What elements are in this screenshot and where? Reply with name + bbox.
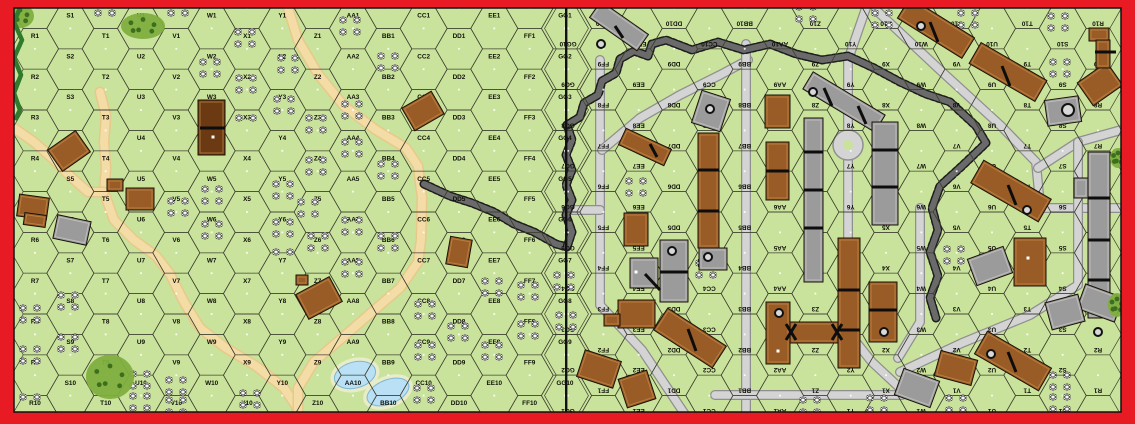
hex-label-left-CC5: CC5 bbox=[417, 176, 430, 183]
hex-label-right-T7: T7 bbox=[1023, 142, 1031, 149]
hex-label-left-U2: U2 bbox=[137, 53, 146, 60]
hex-label-left-DD9: DD9 bbox=[453, 359, 466, 366]
hex-label-left-T2: T2 bbox=[102, 74, 110, 81]
hex-label-left-X7: X7 bbox=[243, 278, 251, 285]
hex-label-right-CC10: CC10 bbox=[701, 40, 718, 47]
hex-label-left-U8: U8 bbox=[137, 298, 146, 305]
hex-label-left-FF1: FF1 bbox=[524, 33, 536, 40]
hex-label-left-Y1: Y1 bbox=[278, 13, 286, 20]
hex-label-right-BB3: BB3 bbox=[738, 305, 751, 312]
hex-label-right-R2: R2 bbox=[1093, 346, 1102, 353]
hex-label-left-S9: S9 bbox=[66, 339, 74, 346]
hex-label-left-CC6: CC6 bbox=[417, 217, 430, 224]
hex-label-right-AA5: AA5 bbox=[773, 244, 786, 251]
hex-label-left-DD1: DD1 bbox=[453, 33, 466, 40]
hex-label-right-R7: R7 bbox=[1093, 142, 1102, 149]
wooden-building-4 bbox=[107, 179, 123, 191]
hex-label-right-R1: R1 bbox=[1093, 387, 1102, 394]
hex-label-left-R7: R7 bbox=[31, 278, 40, 285]
hex-label-right-X9: X9 bbox=[882, 60, 890, 67]
hex-label-right-Z2: Z2 bbox=[811, 346, 819, 353]
hex-label-left-FF10: FF10 bbox=[522, 400, 537, 407]
hex-label-right-S9: S9 bbox=[1058, 81, 1066, 88]
wooden-building-20 bbox=[698, 133, 719, 248]
hex-label-right-DD8: DD8 bbox=[667, 101, 680, 108]
hex-label-right-BB1: BB1 bbox=[738, 387, 751, 394]
hex-label-left-EE2: EE2 bbox=[488, 53, 501, 60]
hex-label-left-BB8: BB8 bbox=[382, 319, 395, 326]
hex-label-right-S6: S6 bbox=[1058, 203, 1066, 210]
hex-label-right-EE8: EE8 bbox=[632, 121, 645, 128]
hex-label-right-U2: U2 bbox=[987, 366, 996, 373]
hex-label-right-Y7: Y7 bbox=[846, 162, 854, 169]
hex-label-right-Z1: Z1 bbox=[811, 387, 819, 394]
hex-label-right-EE7: EE7 bbox=[632, 162, 645, 169]
hex-label-left-FF5: FF5 bbox=[524, 196, 536, 203]
hex-label-left-CC1: CC1 bbox=[417, 13, 430, 20]
hex-label-right-W4: W4 bbox=[916, 285, 926, 292]
hex-label-right-BB5: BB5 bbox=[738, 223, 751, 230]
door-marker bbox=[1027, 257, 1030, 260]
hex-label-left-DD4: DD4 bbox=[453, 155, 466, 162]
hex-label-right-DD5: DD5 bbox=[667, 223, 680, 230]
wooden-building-5 bbox=[126, 188, 154, 210]
hex-label-left-R1: R1 bbox=[31, 33, 40, 40]
door-marker bbox=[777, 350, 780, 353]
hex-label-left-R4: R4 bbox=[31, 155, 40, 162]
hex-label-left-T4: T4 bbox=[102, 155, 110, 162]
hex-label-left-Y5: Y5 bbox=[278, 176, 286, 183]
hex-label-left-EE4: EE4 bbox=[488, 135, 501, 142]
hex-label-left-S1: S1 bbox=[66, 13, 74, 20]
hex-label-left-T6: T6 bbox=[102, 237, 110, 244]
hex-label-left-V4: V4 bbox=[172, 155, 180, 162]
hex-label-right-V5: V5 bbox=[952, 223, 960, 230]
hex-label-left-X6: X6 bbox=[243, 237, 251, 244]
hex-label-right-EE9: EE9 bbox=[632, 81, 645, 88]
hex-label-left-R10: R10 bbox=[29, 400, 41, 407]
hex-label-left-BB7: BB7 bbox=[382, 278, 395, 285]
hex-label-left-AA10: AA10 bbox=[345, 380, 362, 387]
hex-label-right-FF4: FF4 bbox=[597, 264, 609, 271]
hex-label-left-W2: W2 bbox=[207, 53, 217, 60]
hex-label-right-Y9: Y9 bbox=[846, 81, 854, 88]
hex-label-right-FF7: FF7 bbox=[597, 142, 609, 149]
hex-label-right-W5: W5 bbox=[916, 244, 926, 251]
hex-label-right-BB4: BB4 bbox=[738, 264, 751, 271]
hex-label-left-Y4: Y4 bbox=[278, 135, 286, 142]
hex-label-right-T9: T9 bbox=[1023, 60, 1031, 67]
tree-clump bbox=[86, 355, 134, 399]
hex-label-right-BB9: BB9 bbox=[738, 60, 751, 67]
hex-label-left-Z1: Z1 bbox=[314, 33, 322, 40]
hex-label-left-FF3: FF3 bbox=[524, 115, 536, 122]
hex-label-left-V8: V8 bbox=[172, 319, 180, 326]
hex-label-right-Z3: Z3 bbox=[811, 305, 819, 312]
hex-label-left-S8: S8 bbox=[66, 298, 74, 305]
hex-label-left-BB2: BB2 bbox=[382, 74, 395, 81]
hex-label-right-DD1: DD1 bbox=[667, 387, 680, 394]
door-marker bbox=[635, 271, 638, 274]
hex-label-left-W7: W7 bbox=[207, 257, 217, 264]
hex-label-right-GG6: GG6 bbox=[561, 203, 575, 210]
hex-label-right-BB10: BB10 bbox=[736, 19, 753, 26]
hex-label-left-R6: R6 bbox=[31, 237, 40, 244]
hex-label-right-GG9: GG9 bbox=[561, 81, 575, 88]
hex-label-right-V1: V1 bbox=[952, 387, 960, 394]
well-icon bbox=[597, 40, 605, 48]
hex-label-left-EE7: EE7 bbox=[488, 257, 501, 264]
hex-label-left-Y8: Y8 bbox=[278, 298, 286, 305]
hex-label-right-X2: X2 bbox=[882, 346, 890, 353]
hex-label-right-W3: W3 bbox=[916, 325, 926, 332]
hex-label-right-T2: T2 bbox=[1023, 346, 1031, 353]
hex-label-left-T1: T1 bbox=[102, 33, 110, 40]
hex-label-left-BB5: BB5 bbox=[382, 196, 395, 203]
hex-label-right-X1: X1 bbox=[882, 387, 890, 394]
hex-label-left-V1: V1 bbox=[172, 33, 180, 40]
hex-label-left-X9: X9 bbox=[243, 359, 251, 366]
hex-label-left-BB10: BB10 bbox=[380, 400, 397, 407]
hex-label-right-FF9: FF9 bbox=[597, 60, 609, 67]
hex-label-right-Y6: Y6 bbox=[846, 203, 854, 210]
hex-label-right-X4: X4 bbox=[882, 264, 890, 271]
hex-label-left-CC2: CC2 bbox=[417, 53, 430, 60]
hex-label-right-Z9: Z9 bbox=[811, 60, 819, 67]
hex-label-left-W1: W1 bbox=[207, 13, 217, 20]
hex-label-left-BB3: BB3 bbox=[382, 115, 395, 122]
hex-label-left-T8: T8 bbox=[102, 319, 110, 326]
hex-label-left-AA3: AA3 bbox=[347, 94, 360, 101]
hex-label-right-GG7: GG7 bbox=[561, 162, 575, 169]
hex-label-right-W2: W2 bbox=[916, 366, 926, 373]
hex-label-right-FF2: FF2 bbox=[597, 346, 609, 353]
hex-label-left-W9: W9 bbox=[207, 339, 217, 346]
hex-label-left-S2: S2 bbox=[66, 53, 74, 60]
well-icon bbox=[809, 88, 817, 96]
hex-label-left-DD10: DD10 bbox=[451, 400, 468, 407]
hex-label-right-DD6: DD6 bbox=[667, 183, 680, 190]
tree-clump bbox=[121, 13, 165, 39]
wooden-building-23 bbox=[624, 213, 648, 246]
hex-label-left-T3: T3 bbox=[102, 115, 110, 122]
hex-label-left-R3: R3 bbox=[31, 115, 40, 122]
hex-label-right-CC4: CC4 bbox=[703, 285, 716, 292]
hex-label-left-Z10: Z10 bbox=[312, 400, 323, 407]
hex-label-left-CC7: CC7 bbox=[417, 257, 430, 264]
hex-label-left-Z6: Z6 bbox=[314, 237, 322, 244]
hex-label-right-DD9: DD9 bbox=[667, 60, 680, 67]
hex-label-right-R10: R10 bbox=[1092, 19, 1104, 26]
stone-building-11 bbox=[804, 118, 823, 282]
wooden-building-21 bbox=[765, 95, 790, 128]
hex-label-right-T1: T1 bbox=[1023, 387, 1031, 394]
hex-label-right-DD10: DD10 bbox=[665, 19, 682, 26]
hex-label-right-W6: W6 bbox=[916, 203, 926, 210]
well-icon bbox=[775, 309, 783, 317]
hex-label-right-AA4: AA4 bbox=[773, 285, 786, 292]
hex-label-left-Z2: Z2 bbox=[314, 74, 322, 81]
well-icon bbox=[1094, 328, 1102, 336]
hex-label-right-V3: V3 bbox=[952, 305, 960, 312]
hex-label-left-S5: S5 bbox=[66, 176, 74, 183]
hex-label-right-V2: V2 bbox=[952, 346, 960, 353]
hex-label-right-AA9: AA9 bbox=[773, 81, 786, 88]
hex-label-right-Y10: Y10 bbox=[845, 40, 857, 47]
hex-label-right-AA10: AA10 bbox=[771, 40, 788, 47]
hex-label-left-X4: X4 bbox=[243, 155, 251, 162]
hex-label-right-V6: V6 bbox=[952, 183, 960, 190]
hex-label-right-V8: V8 bbox=[952, 101, 960, 108]
hex-label-left-EE3: EE3 bbox=[488, 94, 501, 101]
hex-label-right-DD2: DD2 bbox=[667, 346, 680, 353]
hex-label-right-U8: U8 bbox=[987, 121, 996, 128]
hex-label-left-Y6: Y6 bbox=[278, 217, 286, 224]
hex-label-right-DD7: DD7 bbox=[667, 142, 680, 149]
hex-label-right-BB7: BB7 bbox=[738, 142, 751, 149]
hex-label-left-U5: U5 bbox=[137, 176, 146, 183]
hex-label-left-DD7: DD7 bbox=[453, 278, 466, 285]
hex-label-right-S10: S10 bbox=[1057, 40, 1069, 47]
hex-label-right-W8: W8 bbox=[916, 121, 926, 128]
hex-label-left-Z9: Z9 bbox=[314, 359, 322, 366]
hex-label-right-FF3: FF3 bbox=[597, 305, 609, 312]
stone-building-18 bbox=[699, 248, 727, 270]
hex-label-left-Y9: Y9 bbox=[278, 339, 286, 346]
hex-label-left-FF4: FF4 bbox=[524, 155, 536, 162]
hex-label-left-U9: U9 bbox=[137, 339, 146, 346]
hex-label-left-V9: V9 bbox=[172, 359, 180, 366]
hex-label-left-DD5: DD5 bbox=[453, 196, 466, 203]
hex-label-left-U7: U7 bbox=[137, 257, 146, 264]
hex-label-right-GG2: GG2 bbox=[561, 366, 575, 373]
wargame-hex-map[interactable]: R1R2R3R4R5R6R7R8R9R10S1S2S3S4S5S6S7S8S9S… bbox=[0, 0, 1135, 424]
hex-label-right-GG8: GG8 bbox=[561, 121, 575, 128]
hex-label-left-BB1: BB1 bbox=[382, 33, 395, 40]
hex-label-right-AA2: AA2 bbox=[773, 366, 786, 373]
hex-label-right-V9: V9 bbox=[952, 60, 960, 67]
hex-label-right-S4: S4 bbox=[1058, 285, 1066, 292]
well-icon bbox=[668, 247, 676, 255]
hex-label-right-T10: T10 bbox=[1021, 19, 1032, 26]
hex-label-left-X8: X8 bbox=[243, 319, 251, 326]
hex-label-right-CC2: CC2 bbox=[703, 366, 716, 373]
hex-label-right-BB6: BB6 bbox=[738, 183, 751, 190]
hex-label-right-EE6: EE6 bbox=[632, 203, 645, 210]
hex-label-right-W10: W10 bbox=[914, 40, 928, 47]
map-window: R1R2R3R4R5R6R7R8R9R10S1S2S3S4S5S6S7S8S9S… bbox=[0, 0, 1135, 424]
hex-label-right-U9: U9 bbox=[987, 81, 996, 88]
well-icon bbox=[987, 350, 995, 358]
hex-label-left-FF9: FF9 bbox=[524, 359, 536, 366]
hex-label-left-FF6: FF6 bbox=[524, 237, 536, 244]
hex-label-right-BB8: BB8 bbox=[738, 101, 751, 108]
hex-label-left-CC4: CC4 bbox=[417, 135, 430, 142]
hex-label-left-R2: R2 bbox=[31, 74, 40, 81]
door-marker bbox=[212, 136, 215, 139]
hex-label-right-T3: T3 bbox=[1023, 305, 1031, 312]
wooden-building-34 bbox=[1014, 238, 1046, 286]
well-icon bbox=[704, 253, 712, 261]
hex-label-right-W7: W7 bbox=[916, 162, 926, 169]
well-icon bbox=[880, 328, 888, 336]
hex-label-right-Y8: Y8 bbox=[846, 121, 854, 128]
well-icon bbox=[706, 105, 714, 113]
hex-label-left-DD3: DD3 bbox=[453, 115, 466, 122]
hex-label-left-U4: U4 bbox=[137, 135, 146, 142]
hex-label-left-U6: U6 bbox=[137, 217, 146, 224]
hex-label-right-FF5: FF5 bbox=[597, 223, 609, 230]
hex-label-left-BB9: BB9 bbox=[382, 359, 395, 366]
hex-label-right-FF6: FF6 bbox=[597, 183, 609, 190]
hex-label-left-V6: V6 bbox=[172, 237, 180, 244]
hex-label-right-V4: V4 bbox=[952, 264, 960, 271]
hex-label-right-FF1: FF1 bbox=[597, 387, 609, 394]
hex-label-left-T7: T7 bbox=[102, 278, 110, 285]
hex-label-left-T5: T5 bbox=[102, 196, 110, 203]
hex-label-left-EE6: EE6 bbox=[488, 217, 501, 224]
hex-label-left-S10: S10 bbox=[65, 380, 77, 387]
wooden-building-8 bbox=[446, 236, 473, 267]
hex-label-left-W5: W5 bbox=[207, 176, 217, 183]
hex-label-left-Y7: Y7 bbox=[278, 257, 286, 264]
well-icon bbox=[917, 22, 925, 30]
hex-label-right-S7: S7 bbox=[1058, 162, 1066, 169]
hex-label-left-S7: S7 bbox=[66, 257, 74, 264]
hex-label-right-U6: U6 bbox=[987, 203, 996, 210]
hex-label-right-V7: V7 bbox=[952, 142, 960, 149]
board-boundary-line bbox=[565, 8, 567, 412]
hex-label-right-Z8: Z8 bbox=[811, 101, 819, 108]
wooden-building-30 bbox=[838, 238, 860, 368]
hex-label-right-X8: X8 bbox=[882, 101, 890, 108]
hex-label-left-AA5: AA5 bbox=[347, 176, 360, 183]
hex-label-right-GG5: GG5 bbox=[561, 244, 575, 251]
well-icon bbox=[1062, 104, 1074, 116]
hex-label-left-EE1: EE1 bbox=[488, 13, 501, 20]
hex-label-left-EE8: EE8 bbox=[488, 298, 501, 305]
hex-label-right-U3: U3 bbox=[987, 325, 996, 332]
hex-label-right-S5: S5 bbox=[1058, 244, 1066, 251]
hex-label-right-GG10: GG10 bbox=[559, 40, 576, 47]
hex-label-right-T8: T8 bbox=[1023, 101, 1031, 108]
hex-label-left-T10: T10 bbox=[100, 400, 111, 407]
hex-label-right-U4: U4 bbox=[987, 285, 996, 292]
hex-label-left-S3: S3 bbox=[66, 94, 74, 101]
hex-label-left-Y10: Y10 bbox=[277, 380, 289, 387]
hex-label-left-V7: V7 bbox=[172, 278, 180, 285]
well-icon bbox=[1023, 206, 1031, 214]
hex-label-right-AA6: AA6 bbox=[773, 203, 786, 210]
hex-label-left-FF2: FF2 bbox=[524, 74, 536, 81]
hex-label-left-EE5: EE5 bbox=[488, 176, 501, 183]
hex-label-left-AA8: AA8 bbox=[347, 298, 360, 305]
hex-label-left-Z8: Z8 bbox=[314, 319, 322, 326]
hex-label-left-V3: V3 bbox=[172, 115, 180, 122]
hex-label-right-BB2: BB2 bbox=[738, 346, 751, 353]
hex-label-left-DD2: DD2 bbox=[453, 74, 466, 81]
hex-label-right-W9: W9 bbox=[916, 81, 926, 88]
hex-label-right-S2: S2 bbox=[1058, 366, 1066, 373]
hex-label-left-AA2: AA2 bbox=[347, 53, 360, 60]
hex-label-left-X5: X5 bbox=[243, 196, 251, 203]
hex-label-right-FF8: FF8 bbox=[597, 101, 609, 108]
hex-label-right-CC9: CC9 bbox=[703, 81, 716, 88]
hex-label-left-V2: V2 bbox=[172, 74, 180, 81]
hex-label-left-EE10: EE10 bbox=[486, 380, 502, 387]
hex-label-left-W8: W8 bbox=[207, 298, 217, 305]
hex-label-right-T5: T5 bbox=[1023, 223, 1031, 230]
hex-label-left-AA9: AA9 bbox=[347, 339, 360, 346]
hex-label-left-W10: W10 bbox=[205, 380, 219, 387]
hex-label-left-U3: U3 bbox=[137, 94, 146, 101]
